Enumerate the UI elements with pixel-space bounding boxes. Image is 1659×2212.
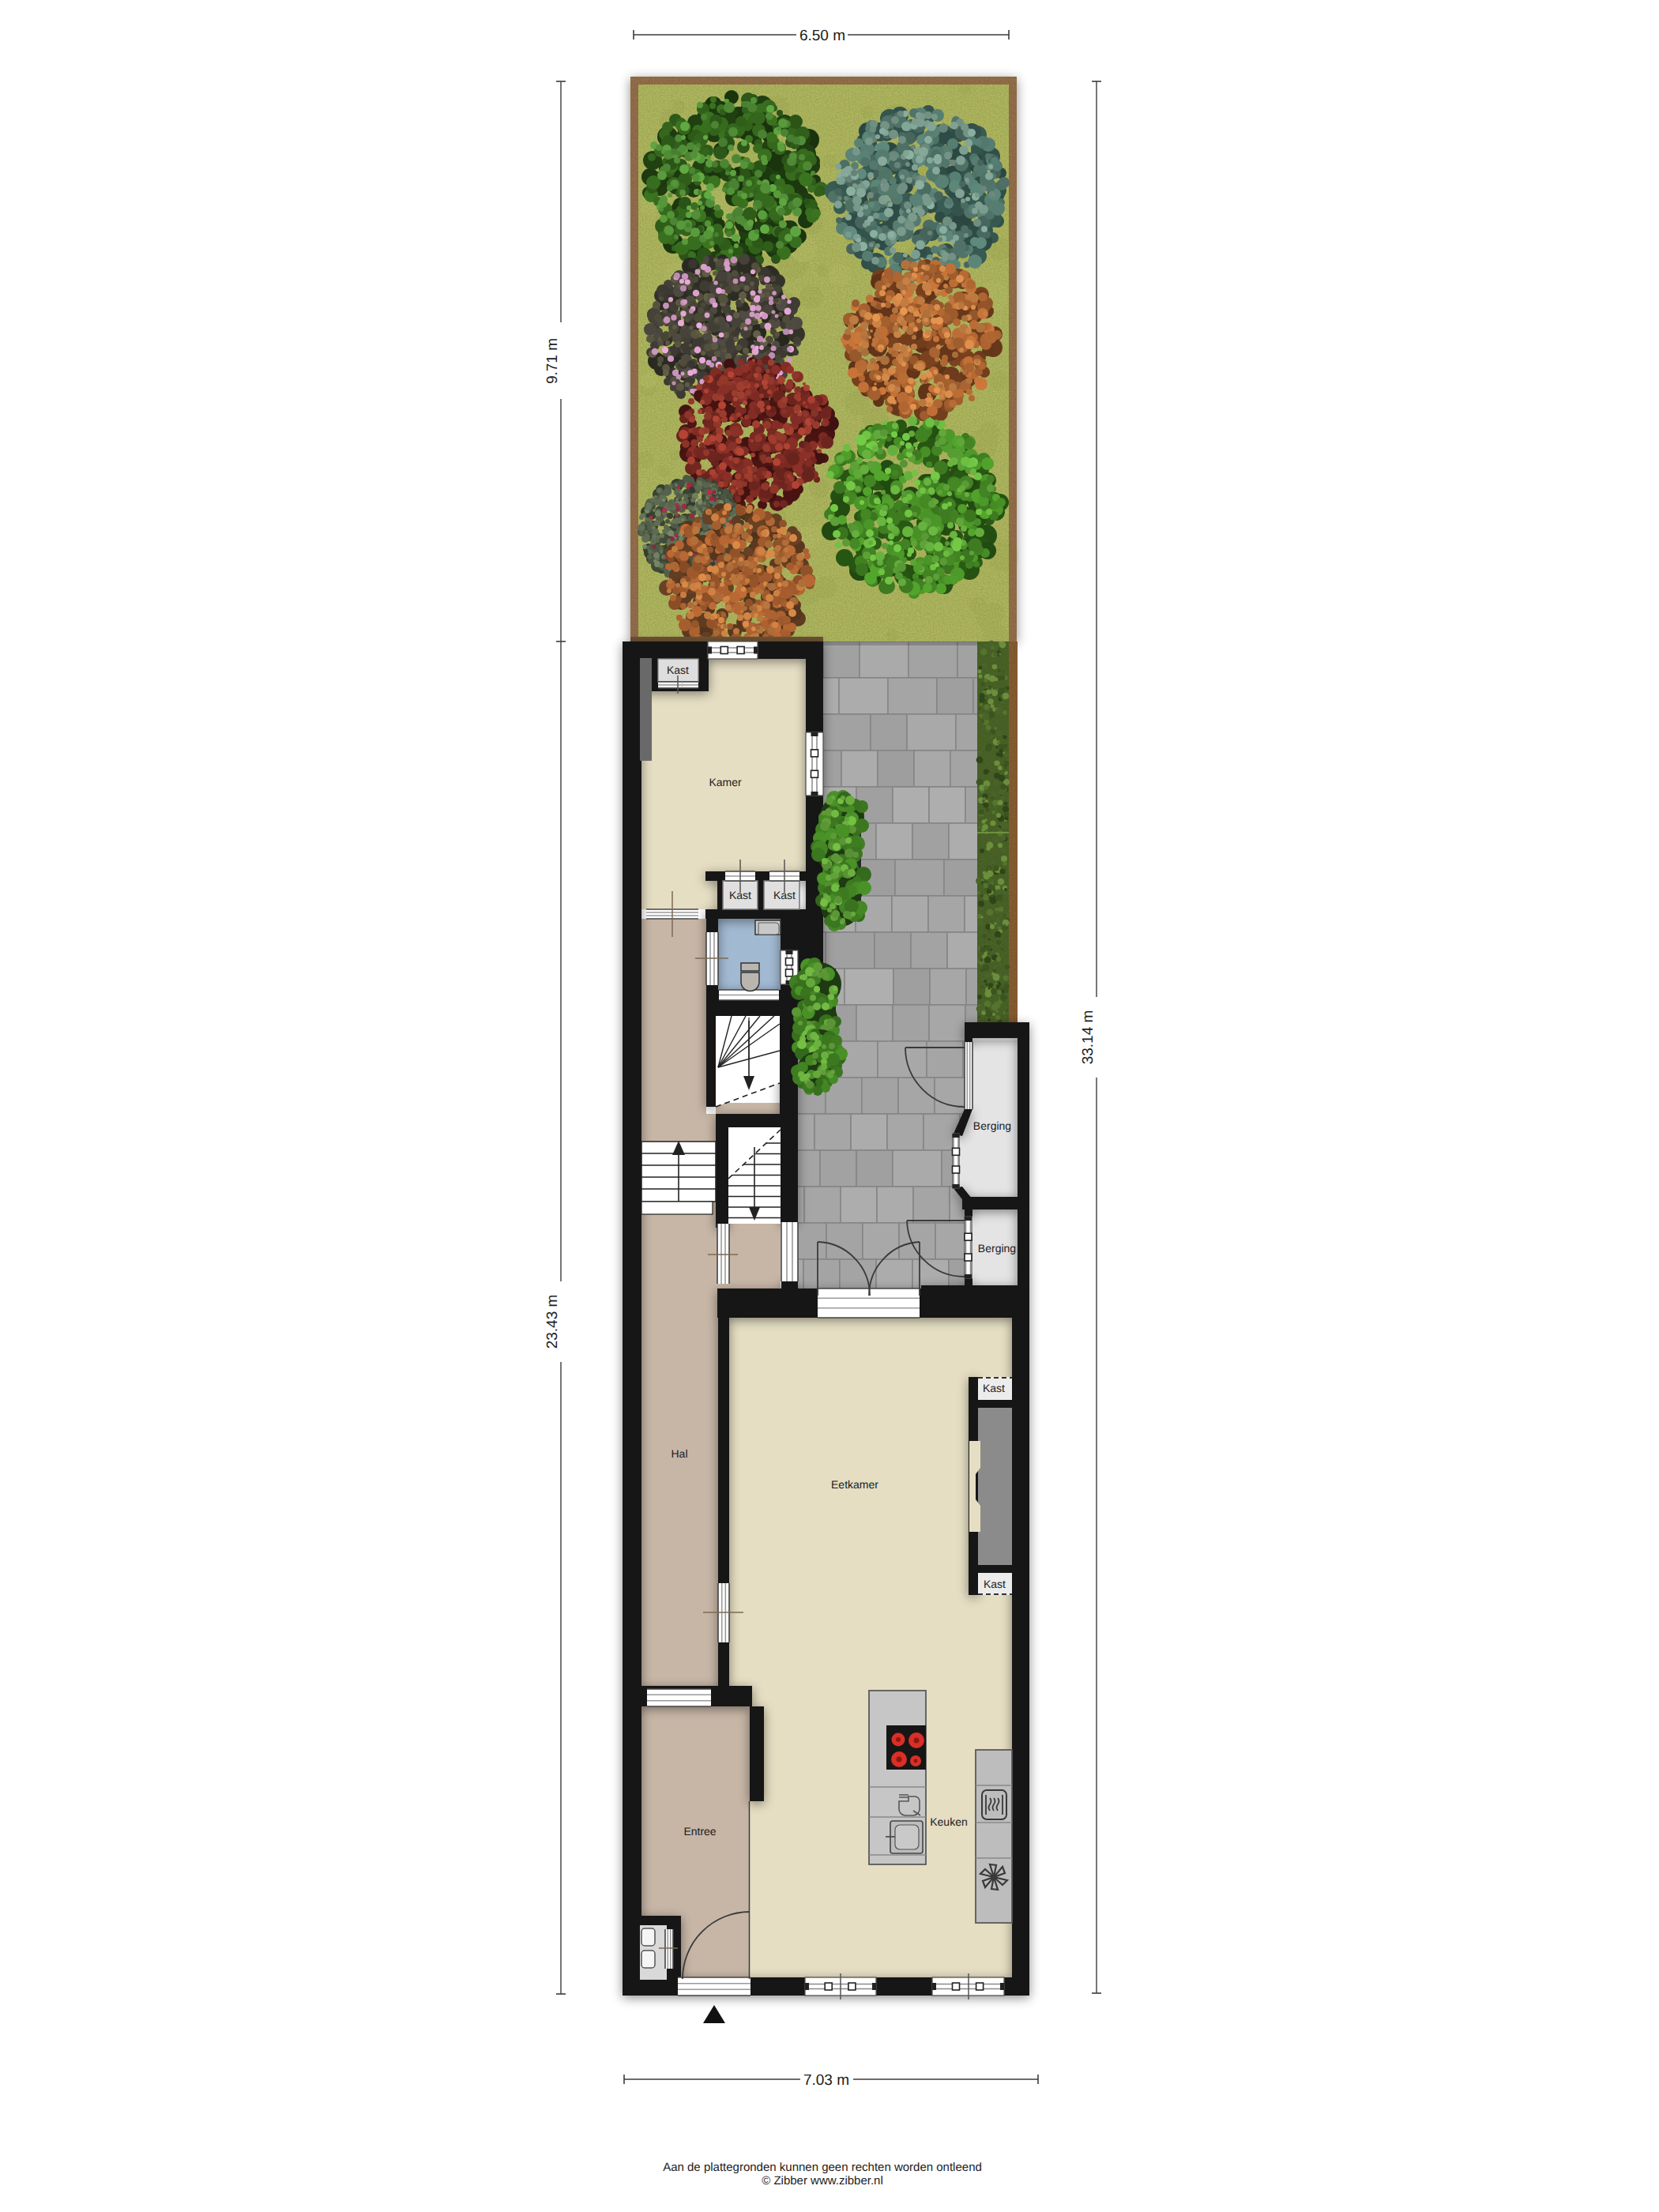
svg-text:© Zibber www.zibber.nl: © Zibber www.zibber.nl [762, 2174, 883, 2188]
svg-text:Kast: Kast [983, 1382, 1005, 1394]
svg-text:Eetkamer: Eetkamer [831, 1478, 878, 1491]
svg-text:Kast: Kast [729, 889, 751, 901]
svg-text:6.50 m: 6.50 m [799, 28, 845, 44]
svg-text:23.43 m: 23.43 m [544, 1295, 561, 1349]
svg-text:Berging: Berging [973, 1119, 1011, 1132]
svg-text:Kast: Kast [773, 889, 796, 901]
svg-text:Keuken: Keuken [930, 1815, 967, 1828]
svg-text:33.14 m: 33.14 m [1080, 1010, 1097, 1065]
svg-text:Kamer: Kamer [709, 776, 742, 788]
svg-text:Kast: Kast [984, 1578, 1006, 1590]
svg-text:Aan de plattegronden kunnen ge: Aan de plattegronden kunnen geen rechten… [663, 2161, 982, 2174]
svg-text:9.71 m: 9.71 m [544, 338, 561, 384]
svg-text:Hal: Hal [671, 1447, 687, 1460]
svg-text:Entree: Entree [683, 1825, 716, 1838]
svg-text:Berging: Berging [978, 1242, 1016, 1255]
svg-text:Kast: Kast [667, 664, 689, 676]
svg-text:7.03 m: 7.03 m [803, 2072, 849, 2089]
